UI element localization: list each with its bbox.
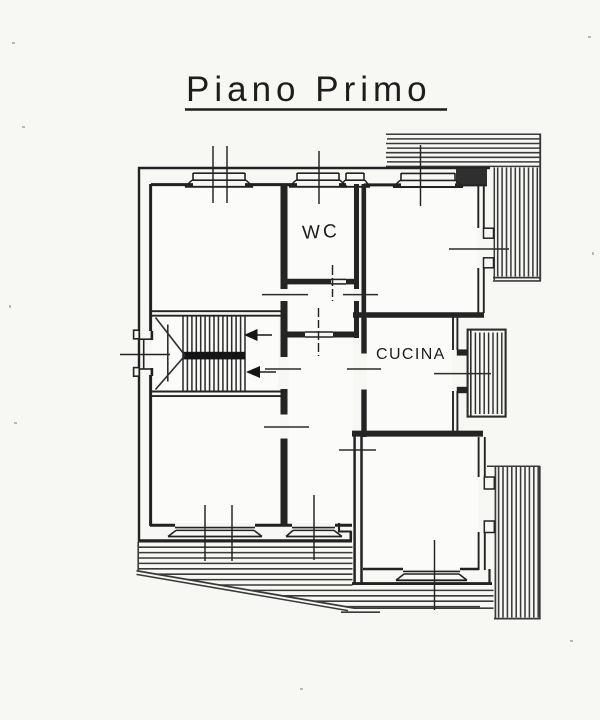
svg-text:WC: WC [302,221,341,244]
svg-text:CUCINA: CUCINA [376,346,446,363]
svg-text:Piano Primo: Piano Primo [186,70,432,109]
